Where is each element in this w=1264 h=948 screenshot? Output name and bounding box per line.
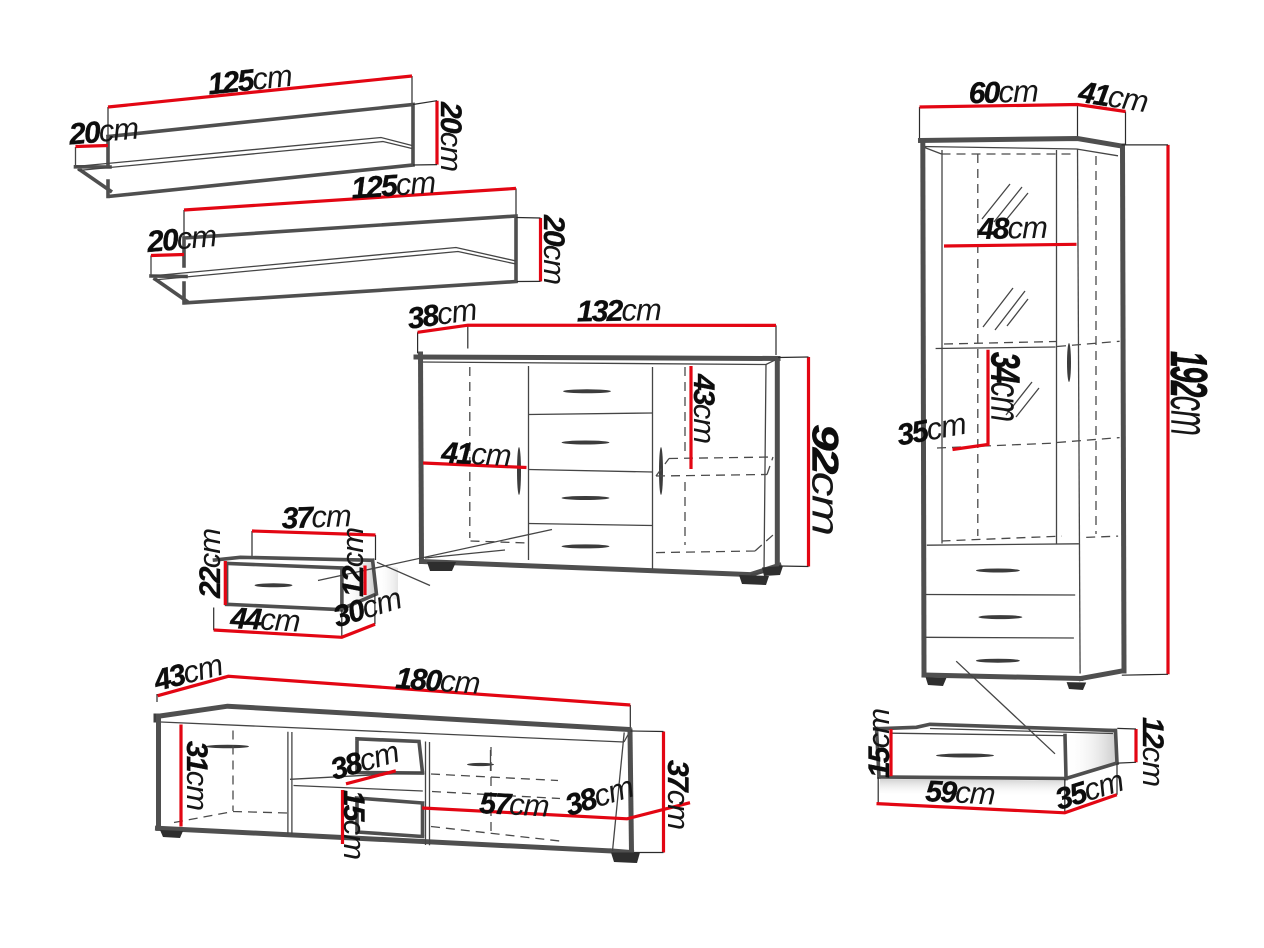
svg-text:37cm: 37cm	[661, 760, 696, 829]
svg-text:34cm: 34cm	[982, 352, 1029, 421]
svg-text:22cm: 22cm	[192, 529, 227, 599]
svg-text:15cm: 15cm	[337, 790, 372, 859]
svg-text:57cm: 57cm	[479, 785, 550, 824]
svg-text:125cm: 125cm	[350, 165, 436, 206]
svg-text:20cm: 20cm	[434, 101, 469, 171]
svg-text:20cm: 20cm	[537, 214, 572, 284]
svg-text:12cm: 12cm	[335, 528, 370, 597]
svg-text:59cm: 59cm	[925, 773, 996, 812]
svg-text:12cm: 12cm	[1136, 717, 1171, 786]
svg-text:132cm: 132cm	[577, 292, 662, 328]
svg-text:48cm: 48cm	[977, 210, 1048, 246]
svg-text:60cm: 60cm	[968, 73, 1038, 110]
svg-text:180cm: 180cm	[395, 660, 481, 701]
svg-text:15cm: 15cm	[861, 709, 896, 778]
svg-text:31cm: 31cm	[180, 741, 215, 810]
svg-text:192cm: 192cm	[1159, 351, 1219, 435]
svg-text:43cm: 43cm	[687, 373, 722, 443]
svg-text:41cm: 41cm	[440, 434, 512, 473]
svg-text:44cm: 44cm	[229, 600, 301, 639]
svg-text:92cm: 92cm	[804, 424, 846, 535]
